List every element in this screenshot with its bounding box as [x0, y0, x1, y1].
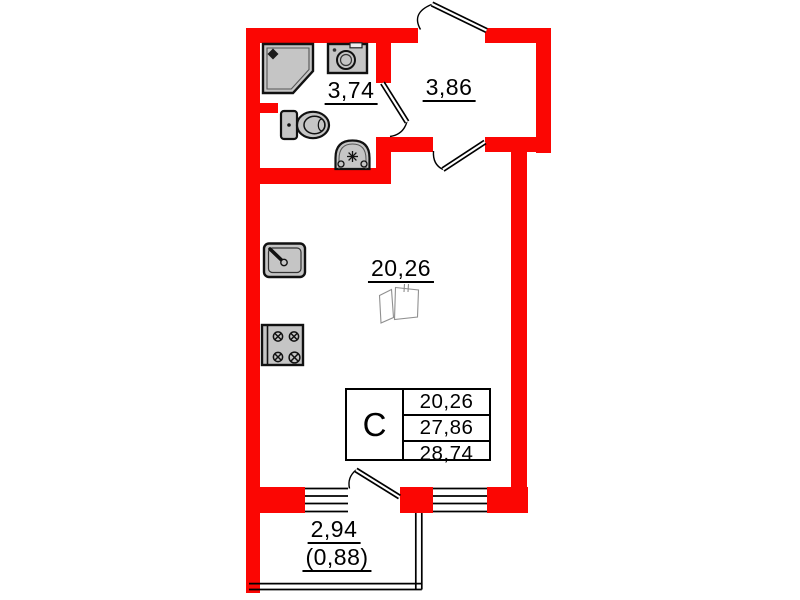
stove-icon	[262, 325, 303, 365]
window-icon	[305, 489, 348, 512]
window-icon	[433, 489, 487, 512]
area-value-row: 28,74	[404, 442, 489, 466]
washing-machine-icon	[328, 43, 367, 73]
summary-table: С 20,26 27,86 28,74	[345, 388, 491, 461]
area-value-row: 20,26	[404, 390, 489, 416]
door-swing-icon	[417, 4, 486, 31]
summary-table-values: 20,26 27,86 28,74	[404, 390, 489, 459]
door-swing-icon	[349, 470, 400, 497]
sink-icon	[336, 141, 370, 170]
floor-plan: 3,74 3,86 20,26 2,94 (0,88) С 20,26 27,8…	[0, 0, 800, 600]
area-label-balcony-reduced: (0,88)	[302, 546, 371, 572]
area-label-balcony: 2,94	[308, 518, 361, 544]
area-label-room: 20,26	[368, 257, 434, 283]
wardrobe-dashed-icon	[380, 284, 419, 323]
area-label-hallway: 3,86	[423, 76, 476, 102]
door-swing-icon	[433, 142, 485, 170]
apartment-type-label: С	[347, 390, 404, 459]
area-value-row: 27,86	[404, 416, 489, 442]
kitchen-sink-icon	[264, 244, 305, 278]
shower-icon	[263, 44, 313, 93]
plan-linework	[0, 0, 800, 600]
door-swing-icon	[383, 83, 408, 137]
area-label-bathroom: 3,74	[325, 79, 378, 105]
toilet-icon	[281, 111, 329, 139]
